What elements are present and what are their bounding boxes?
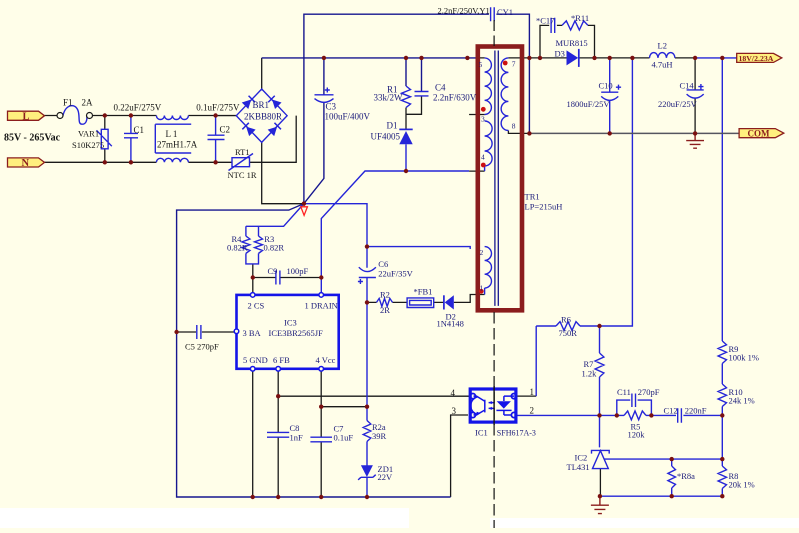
svg-text:*C17: *C17 xyxy=(536,16,554,26)
svg-text:C4: C4 xyxy=(435,82,446,92)
svg-text:CY1: CY1 xyxy=(497,7,513,17)
svg-text:2: 2 xyxy=(530,406,535,416)
svg-text:0.82R: 0.82R xyxy=(264,243,285,253)
svg-text:*R8a: *R8a xyxy=(677,471,695,481)
svg-text:UF4005: UF4005 xyxy=(371,131,401,141)
svg-text:ICE3BR2565JF: ICE3BR2565JF xyxy=(269,328,324,338)
svg-text:2KBB80R: 2KBB80R xyxy=(244,111,282,121)
svg-text:3 BA: 3 BA xyxy=(243,328,262,338)
svg-text:1.2k: 1.2k xyxy=(582,368,598,378)
svg-text:IC3: IC3 xyxy=(284,318,297,328)
svg-text:2R: 2R xyxy=(380,305,390,315)
svg-text:120k: 120k xyxy=(628,430,646,440)
svg-text:1nF: 1nF xyxy=(290,433,304,443)
svg-text:N: N xyxy=(22,158,30,169)
svg-text:SFH617A-3: SFH617A-3 xyxy=(497,429,536,438)
svg-text:D3: D3 xyxy=(555,48,565,58)
svg-text:2 CS: 2 CS xyxy=(248,301,265,311)
svg-text:L 1: L 1 xyxy=(166,129,178,139)
svg-text:1: 1 xyxy=(480,284,484,293)
svg-text:L2: L2 xyxy=(658,41,667,51)
svg-text:5 GND: 5 GND xyxy=(243,355,268,365)
svg-text:24k 1%: 24k 1% xyxy=(729,395,755,405)
svg-text:C6: C6 xyxy=(378,259,388,269)
svg-text:1N4148: 1N4148 xyxy=(437,319,464,329)
svg-text:220nF: 220nF xyxy=(685,405,707,415)
svg-text:100pF: 100pF xyxy=(287,266,309,276)
svg-text:MUR815: MUR815 xyxy=(556,38,588,48)
svg-text:5: 5 xyxy=(479,60,483,69)
svg-text:TL431: TL431 xyxy=(567,462,590,472)
svg-text:F1: F1 xyxy=(63,98,73,108)
svg-text:C14: C14 xyxy=(680,80,695,90)
svg-text:100uF/400V: 100uF/400V xyxy=(325,112,371,122)
svg-text:*R11: *R11 xyxy=(571,13,589,23)
svg-text:C11: C11 xyxy=(617,387,631,397)
svg-text:2.2nF/630V: 2.2nF/630V xyxy=(433,92,477,102)
svg-text:C12: C12 xyxy=(664,405,678,415)
svg-text:D1: D1 xyxy=(387,120,398,130)
svg-text:L: L xyxy=(23,111,30,122)
svg-text:39R: 39R xyxy=(372,431,387,441)
svg-text:22uF/35V: 22uF/35V xyxy=(378,269,413,279)
svg-text:RT1: RT1 xyxy=(235,147,250,157)
svg-text:8: 8 xyxy=(512,122,516,131)
svg-text:220uF/25V: 220uF/25V xyxy=(658,99,698,109)
svg-text:1800uF/25V: 1800uF/25V xyxy=(567,99,611,109)
svg-text:7: 7 xyxy=(512,60,516,69)
svg-text:6 FB: 6 FB xyxy=(273,355,290,365)
svg-text:BR1: BR1 xyxy=(253,100,270,110)
svg-text:R2: R2 xyxy=(380,290,390,300)
svg-text:COM: COM xyxy=(748,129,771,139)
svg-text:2: 2 xyxy=(480,248,484,257)
svg-text:4: 4 xyxy=(481,153,485,162)
svg-text:3: 3 xyxy=(452,406,457,416)
svg-text:18V/2.23A: 18V/2.23A xyxy=(739,54,774,63)
svg-text:4.7uH: 4.7uH xyxy=(652,60,673,70)
svg-text:C1: C1 xyxy=(134,125,145,135)
svg-text:0.1uF: 0.1uF xyxy=(334,433,354,443)
svg-text:33k/2W: 33k/2W xyxy=(374,92,404,102)
svg-text:C9: C9 xyxy=(268,266,278,276)
svg-text:R6: R6 xyxy=(561,315,571,325)
svg-text:TR1: TR1 xyxy=(525,192,540,202)
svg-text:IC1: IC1 xyxy=(475,428,488,438)
svg-text:85V - 265Vac: 85V - 265Vac xyxy=(4,132,61,143)
svg-text:4: 4 xyxy=(451,388,456,398)
svg-text:20k 1%: 20k 1% xyxy=(729,479,755,489)
svg-text:C3: C3 xyxy=(326,102,337,112)
svg-text:27mH1.7A: 27mH1.7A xyxy=(157,140,198,150)
svg-text:C2: C2 xyxy=(220,125,231,135)
svg-text:1: 1 xyxy=(530,387,535,397)
svg-text:*FB1: *FB1 xyxy=(414,286,433,296)
svg-text:0.82R: 0.82R xyxy=(227,243,248,253)
svg-text:0.1uF/275V: 0.1uF/275V xyxy=(196,103,240,113)
svg-text:270pF: 270pF xyxy=(638,387,660,397)
svg-text:2A: 2A xyxy=(82,98,94,108)
svg-text:100k 1%: 100k 1% xyxy=(729,353,759,363)
svg-text:LP=215uH: LP=215uH xyxy=(525,202,563,212)
svg-text:4 Vcc: 4 Vcc xyxy=(316,355,336,365)
svg-text:0.22uF/275V: 0.22uF/275V xyxy=(114,103,162,113)
svg-text:NTC 1R: NTC 1R xyxy=(228,170,257,180)
svg-text:750R: 750R xyxy=(559,328,578,338)
svg-text:VAR1: VAR1 xyxy=(78,129,99,139)
svg-text:C5 270pF: C5 270pF xyxy=(185,341,219,351)
svg-text:S10K275: S10K275 xyxy=(72,140,104,150)
svg-text:C10: C10 xyxy=(599,81,613,91)
svg-text:2.2nF/250V,Y1: 2.2nF/250V,Y1 xyxy=(438,5,490,15)
svg-text:C8: C8 xyxy=(290,423,300,433)
svg-text:3: 3 xyxy=(481,114,485,123)
svg-text:22V: 22V xyxy=(378,472,394,482)
svg-text:1 DRAIN: 1 DRAIN xyxy=(305,301,338,311)
